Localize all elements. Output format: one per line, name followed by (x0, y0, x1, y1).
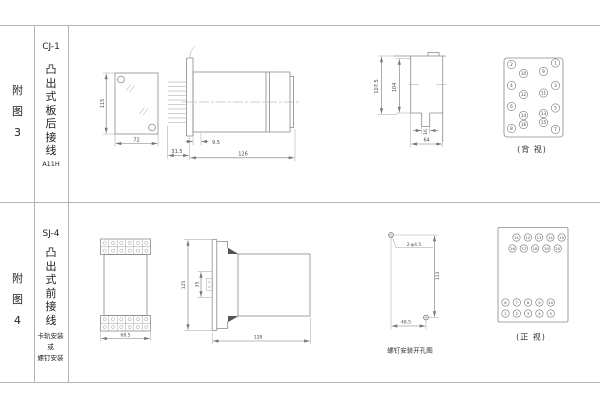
terminal-number: 10 (521, 71, 527, 76)
terminal-number: 4 (510, 83, 513, 88)
figure3-panel-cutout-drawing: 107.5 104 16 64 (374, 53, 446, 148)
terminal-number: 15 (559, 235, 564, 240)
drill-hole-spec: 2-φ4.5 (407, 242, 422, 248)
figure3-front-outline (103, 73, 158, 147)
drawing-sheet: 附图3 CJ-1 凸出式板后接线 A11H 附图4 SJ-4 凸出式前接线 卡轨… (0, 0, 600, 400)
figure4-side-outline (184, 240, 311, 345)
figure4-side-view-drawing: 125 35 128 (181, 240, 311, 345)
figure4-front-outline (101, 239, 151, 331)
mounting-hole-icon (149, 124, 156, 131)
terminal-number: 15 (541, 120, 547, 125)
mounting-hole-icon (118, 76, 125, 83)
figure4-drill-diagram: 2-φ4.5 113 48.5 螺钉安装开孔图 (387, 232, 441, 354)
terminal-number: 11 (541, 91, 547, 96)
figure3-front-view-drawing: 115 72 (100, 73, 158, 147)
terminal-number: 14 (521, 113, 527, 118)
dim-height: 125 (181, 281, 187, 290)
terminal-number: 5 (554, 106, 557, 111)
figure3-back-terminal-diagram: 2 4 6 8 10 12 14 16 1 3 5 7 (504, 58, 563, 154)
figure3-cutout-outline (378, 53, 446, 148)
terminal-number: 17 (521, 246, 526, 251)
terminal-number: 3 (554, 83, 557, 88)
dim-inner-height: 104 (392, 83, 398, 93)
dim-tab-width: 16 (423, 129, 429, 135)
dim-vertical-spacing: 113 (435, 272, 441, 281)
front-view-caption: (正 视) (516, 332, 546, 342)
figure3-side-view-drawing: 9.5 31.5 126 (168, 47, 302, 162)
terminal-number: 14 (548, 235, 553, 240)
dim-width: 72 (133, 138, 139, 144)
terminal-number: 13 (541, 111, 547, 116)
terminal-number: 9 (542, 69, 545, 74)
terminal-number: 1 (554, 61, 557, 66)
dim-outer-height: 107.5 (374, 79, 380, 93)
dim-rail: 35 (194, 282, 200, 288)
drawings-canvas: 115 72 9.5 31.5 126 (0, 0, 600, 400)
terminal-number: 13 (537, 235, 542, 240)
figure4-front-terminal-diagram: 11 12 13 14 15 16 17 18 19 20 6 7 (498, 228, 568, 342)
terminal-number: 20 (555, 246, 560, 251)
dim-cutout-width: 64 (424, 138, 430, 144)
terminal-number: 19 (544, 246, 549, 251)
dim-height: 115 (100, 99, 106, 109)
terminal-number: 16 (521, 122, 527, 127)
terminal-number: 18 (533, 246, 538, 251)
terminal-number: 10 (548, 300, 553, 305)
terminal-number: 8 (510, 126, 513, 131)
terminal-block-outline (498, 228, 568, 323)
dim-width: 68.5 (120, 333, 130, 339)
dim-pin-depth: 31.5 (171, 149, 182, 155)
drill-diagram-caption: 螺钉安装开孔图 (387, 346, 433, 355)
terminal-number: 16 (510, 246, 515, 251)
terminal-number: 2 (510, 62, 513, 67)
back-view-caption: (背 视) (517, 144, 547, 154)
figure3-side-outline (168, 47, 302, 162)
terminal-number: 12 (521, 92, 527, 97)
dim-depth: 128 (254, 335, 263, 341)
dim-pin-offset: 9.5 (212, 140, 220, 146)
dim-horizontal-spacing: 48.5 (401, 320, 411, 326)
terminal-number: 7 (554, 127, 557, 132)
dim-length: 126 (238, 152, 248, 158)
figure4-front-view-drawing: 68.5 (101, 239, 151, 341)
terminal-number: 6 (510, 104, 513, 109)
terminal-number: 11 (514, 235, 519, 240)
terminal-number: 12 (525, 235, 530, 240)
